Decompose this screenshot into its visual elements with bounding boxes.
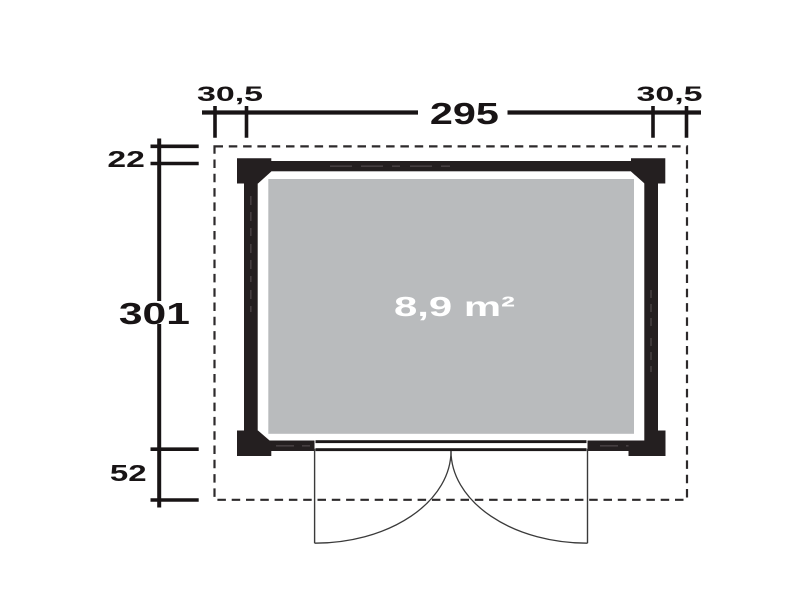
svg-text:30,5: 30,5 [637,82,703,106]
svg-text:295: 295 [430,96,499,131]
svg-text:301: 301 [119,296,190,331]
svg-text:52: 52 [110,460,147,486]
svg-text:8,9 m²: 8,9 m² [394,291,515,322]
svg-text:22: 22 [107,146,145,172]
svg-text:30,5: 30,5 [197,82,263,106]
